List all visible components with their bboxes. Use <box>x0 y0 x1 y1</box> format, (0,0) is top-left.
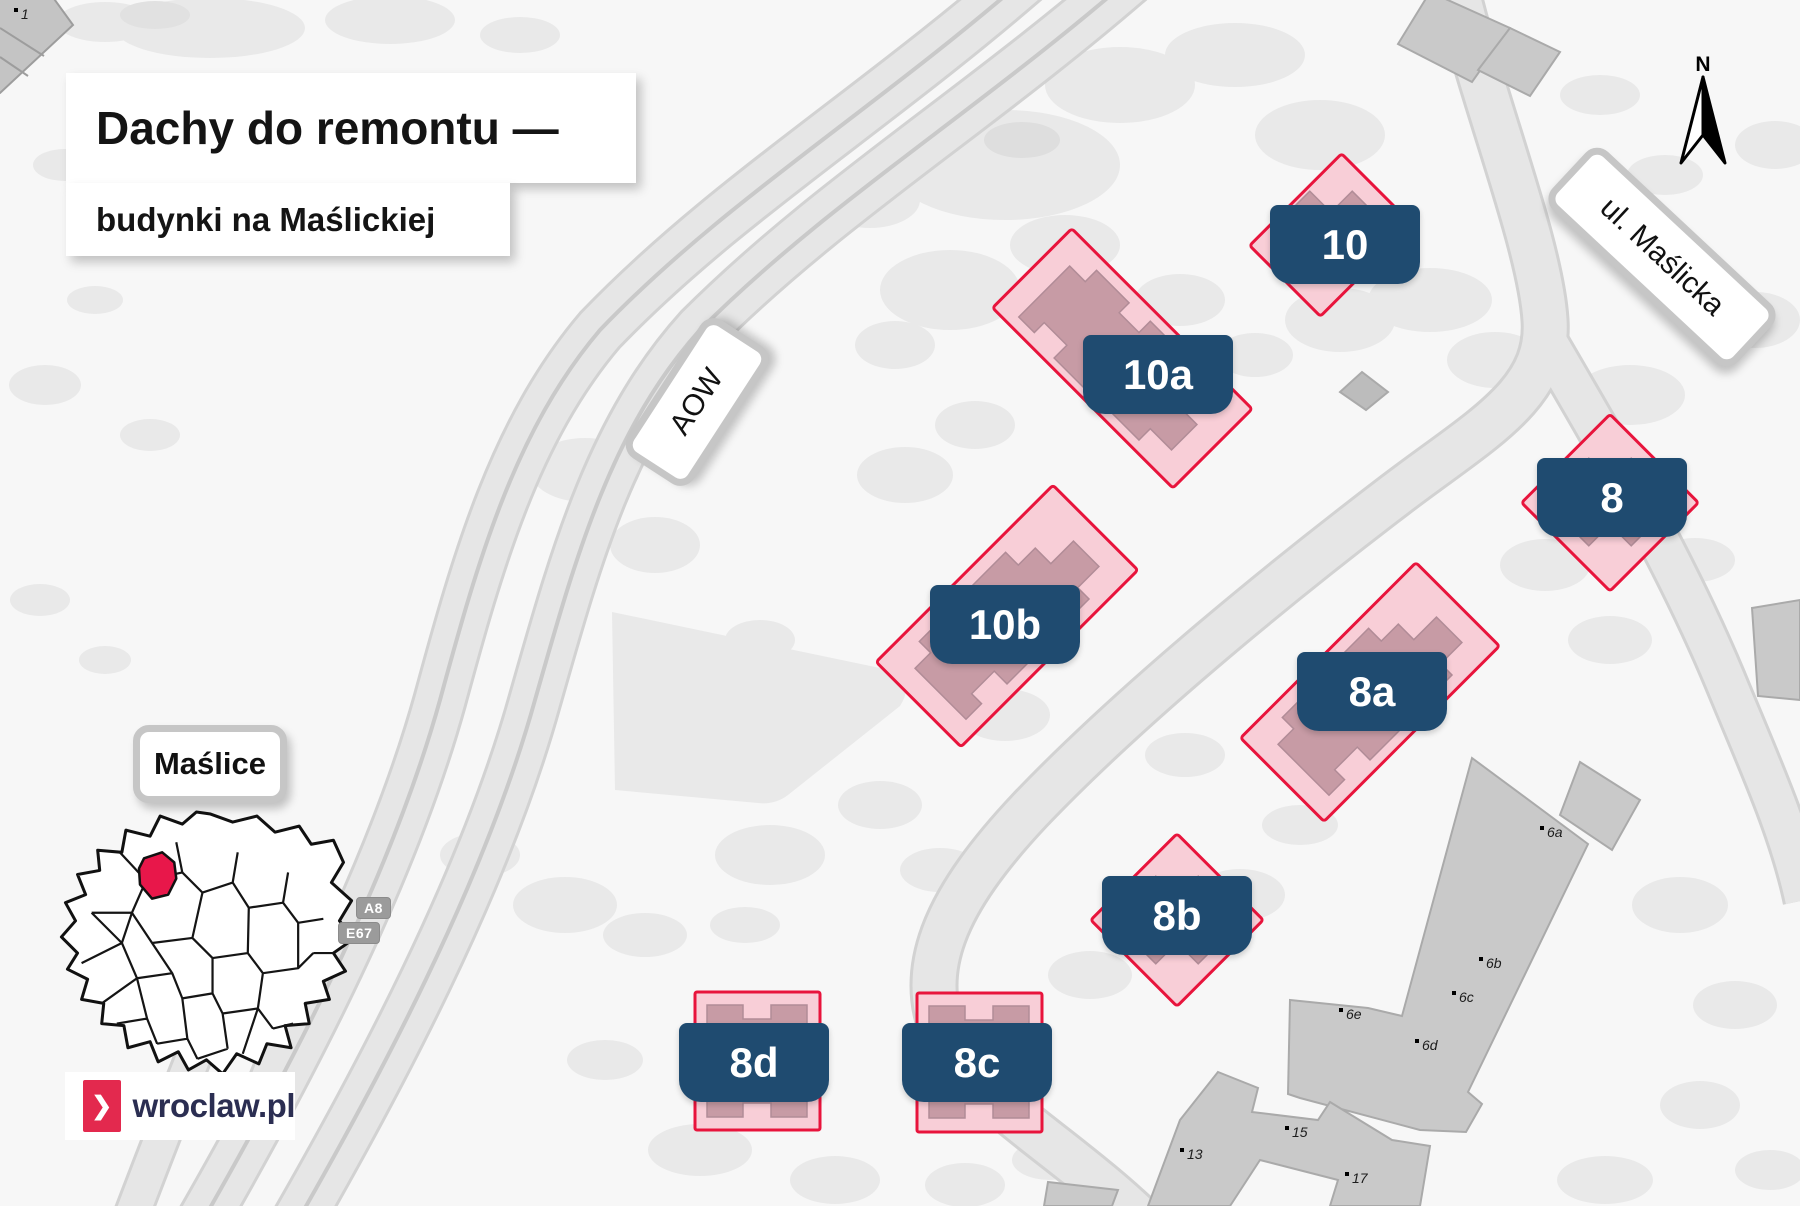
bldg-label-6c: 6c <box>1452 989 1474 1005</box>
bldg-label-17: 17 <box>1345 1170 1368 1186</box>
building-badge-8a: 8a <box>1297 652 1447 731</box>
page-title: Dachy do remontu — <box>96 101 559 155</box>
bldg-label-6b: 6b <box>1479 955 1502 971</box>
district-inset-map <box>58 810 358 1082</box>
bldg-label-13: 13 <box>1180 1146 1203 1162</box>
building-badge-8: 8 <box>1537 458 1687 537</box>
building-badge-8c: 8c <box>902 1023 1052 1102</box>
building-dot-icon <box>1479 957 1483 961</box>
building-dot-icon <box>1285 1126 1289 1130</box>
compass: N <box>1668 54 1738 167</box>
compass-n-label: N <box>1695 54 1710 75</box>
building-badge-10: 10 <box>1270 205 1420 284</box>
building-badge-10b: 10b <box>930 585 1080 664</box>
building-dot-icon <box>1452 991 1456 995</box>
subtitle-card: budynki na Maślickiej <box>66 183 510 256</box>
building-badge-8b: 8b <box>1102 876 1252 955</box>
building-dot-icon <box>1339 1008 1343 1012</box>
route-shield-e67: E67 <box>338 922 380 944</box>
bldg-label-6a: 6a <box>1540 824 1563 840</box>
logo-text: wroclaw.pl <box>133 1087 295 1125</box>
building-dot-icon <box>14 8 18 12</box>
building-dot-icon <box>1415 1039 1419 1043</box>
building-badge-10a: 10a <box>1083 335 1233 414</box>
building-dot-icon <box>1180 1148 1184 1152</box>
north-arrow-icon <box>1675 75 1731 167</box>
wroclaw-logo: ❯ wroclaw.pl <box>65 1072 295 1140</box>
district-label-pill: Maślice <box>133 725 287 803</box>
page-subtitle: budynki na Maślickiej <box>96 201 435 239</box>
district-maslice-highlight <box>139 852 176 898</box>
bldg-label-6d: 6d <box>1415 1037 1438 1053</box>
bldg-label-6e: 6e <box>1339 1006 1362 1022</box>
bldg-label-1: 1 <box>14 6 29 22</box>
building-dot-icon <box>1540 826 1544 830</box>
title-card: Dachy do remontu — <box>66 73 636 183</box>
logo-chevron-icon: ❯ <box>83 1080 121 1132</box>
map-canvas: 1 6a 6b 6c 6d 6e 13 15 17 10 10a 10b 8 8… <box>0 0 1800 1206</box>
building-badge-8d: 8d <box>679 1023 829 1102</box>
bldg-label-15: 15 <box>1285 1124 1308 1140</box>
building-dot-icon <box>1345 1172 1349 1176</box>
route-shield-a8: A8 <box>356 897 391 919</box>
